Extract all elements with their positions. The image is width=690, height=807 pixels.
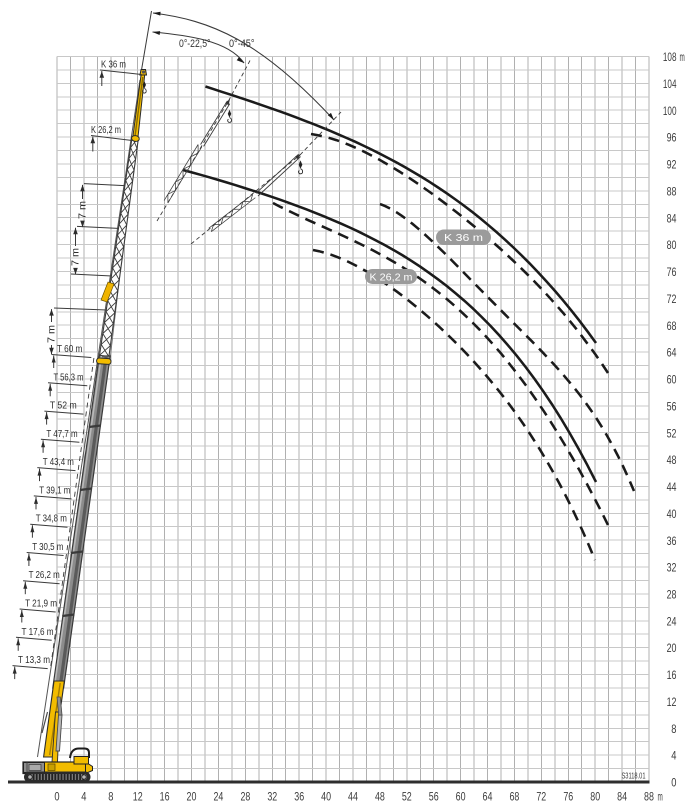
svg-text:28: 28 bbox=[667, 588, 677, 602]
svg-text:T 26,2 m: T 26,2 m bbox=[29, 570, 60, 581]
svg-text:104: 104 bbox=[663, 77, 677, 91]
svg-text:80: 80 bbox=[590, 790, 600, 804]
svg-text:52: 52 bbox=[402, 790, 412, 804]
svg-text:12: 12 bbox=[133, 790, 143, 804]
svg-text:8: 8 bbox=[671, 722, 676, 736]
svg-text:44: 44 bbox=[667, 480, 677, 494]
svg-text:0: 0 bbox=[671, 776, 676, 790]
svg-text:92: 92 bbox=[667, 158, 677, 172]
svg-text:64: 64 bbox=[667, 346, 677, 360]
svg-text:56: 56 bbox=[429, 790, 439, 804]
svg-text:84: 84 bbox=[617, 790, 627, 804]
svg-text:K 26,2 m: K 26,2 m bbox=[370, 273, 413, 284]
svg-text:T 39,1 m: T 39,1 m bbox=[39, 485, 70, 496]
svg-text:m: m bbox=[658, 790, 663, 804]
svg-text:T 21,9 m: T 21,9 m bbox=[25, 599, 57, 610]
svg-text:68: 68 bbox=[667, 319, 677, 333]
svg-text:108: 108 bbox=[663, 50, 677, 64]
svg-text:32: 32 bbox=[667, 561, 677, 575]
svg-text:52: 52 bbox=[667, 426, 677, 440]
svg-text:24: 24 bbox=[667, 614, 677, 628]
svg-text:28: 28 bbox=[240, 790, 250, 804]
svg-text:8: 8 bbox=[108, 790, 113, 804]
svg-text:S3118.01: S3118.01 bbox=[622, 771, 646, 781]
svg-text:24: 24 bbox=[213, 790, 223, 804]
svg-text:76: 76 bbox=[563, 790, 573, 804]
svg-text:0°-22,5°: 0°-22,5° bbox=[179, 38, 211, 50]
svg-text:T 60 m: T 60 m bbox=[57, 344, 82, 355]
svg-text:48: 48 bbox=[375, 790, 385, 804]
svg-text:72: 72 bbox=[536, 790, 546, 804]
svg-text:40: 40 bbox=[667, 507, 677, 521]
svg-text:T 52 m: T 52 m bbox=[50, 401, 77, 412]
svg-text:60: 60 bbox=[667, 373, 677, 387]
svg-text:88: 88 bbox=[667, 185, 677, 199]
svg-text:T 13,3 m: T 13,3 m bbox=[18, 655, 50, 666]
svg-text:32: 32 bbox=[267, 790, 277, 804]
svg-text:84: 84 bbox=[667, 211, 677, 225]
svg-text:7 m: 7 m bbox=[71, 248, 82, 266]
svg-text:T 43,4 m: T 43,4 m bbox=[43, 457, 74, 468]
svg-text:K 26,2 m: K 26,2 m bbox=[91, 125, 121, 136]
svg-text:0°-45°: 0°-45° bbox=[229, 38, 255, 50]
svg-text:T 34,8 m: T 34,8 m bbox=[36, 514, 67, 525]
svg-text:60: 60 bbox=[456, 790, 466, 804]
svg-text:36: 36 bbox=[294, 790, 304, 804]
svg-text:7 m: 7 m bbox=[47, 325, 58, 343]
svg-text:T 47,7 m: T 47,7 m bbox=[46, 429, 77, 440]
svg-text:88: 88 bbox=[644, 790, 654, 804]
svg-text:20: 20 bbox=[667, 641, 677, 655]
svg-text:0: 0 bbox=[54, 790, 59, 804]
svg-text:64: 64 bbox=[483, 790, 493, 804]
svg-text:36: 36 bbox=[667, 534, 677, 548]
svg-text:T 56,3 m: T 56,3 m bbox=[54, 372, 84, 383]
svg-text:96: 96 bbox=[667, 131, 677, 145]
svg-text:100: 100 bbox=[663, 104, 677, 118]
svg-text:20: 20 bbox=[187, 790, 197, 804]
svg-text:68: 68 bbox=[509, 790, 519, 804]
svg-text:K 36 m: K 36 m bbox=[101, 60, 126, 71]
svg-text:T 30,5 m: T 30,5 m bbox=[32, 542, 63, 553]
svg-text:16: 16 bbox=[160, 790, 170, 804]
svg-text:44: 44 bbox=[348, 790, 358, 804]
svg-text:16: 16 bbox=[667, 668, 677, 682]
svg-text:4: 4 bbox=[81, 790, 86, 804]
svg-text:7 m: 7 m bbox=[78, 201, 89, 219]
svg-text:48: 48 bbox=[667, 453, 677, 467]
svg-text:40: 40 bbox=[321, 790, 331, 804]
svg-text:m: m bbox=[680, 50, 685, 64]
svg-text:80: 80 bbox=[667, 238, 677, 252]
svg-text:4: 4 bbox=[671, 749, 676, 763]
svg-text:K 36 m: K 36 m bbox=[444, 233, 483, 244]
svg-text:T 17,6 m: T 17,6 m bbox=[22, 627, 54, 638]
svg-text:76: 76 bbox=[667, 265, 677, 279]
svg-text:72: 72 bbox=[667, 292, 677, 306]
svg-text:56: 56 bbox=[667, 399, 677, 413]
svg-text:12: 12 bbox=[667, 695, 677, 709]
